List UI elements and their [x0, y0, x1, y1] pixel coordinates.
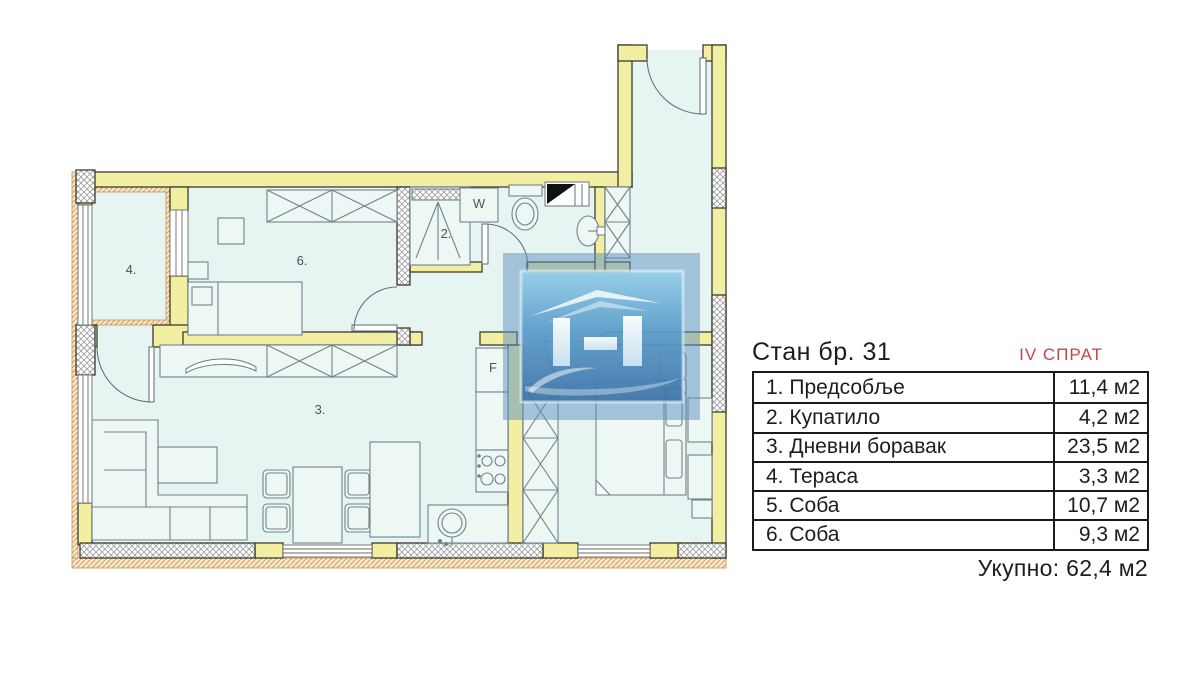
room-area: 10,7 м2 [1053, 492, 1147, 519]
dining-set [263, 467, 372, 543]
watermark-logo [503, 253, 700, 420]
electrical-box [545, 182, 589, 206]
label-bathroom: 2. [441, 226, 452, 241]
room-name: 3. Дневни боравак [754, 434, 1053, 460]
wardrobe-hall [605, 187, 630, 258]
nightstand-room5-c [692, 500, 712, 518]
tv-stand [160, 345, 397, 377]
room-area: 9,3 м2 [1053, 521, 1147, 548]
label-room6: 6. [297, 253, 308, 268]
table-row: 5. Соба 10,7 м2 [754, 490, 1147, 519]
table-row: 3. Дневни боравак 23,5 м2 [754, 432, 1147, 461]
total-area: Укупно: 62,4 м2 [752, 555, 1149, 582]
label-washer: W [473, 196, 486, 211]
room-name: 5. Соба [754, 493, 1053, 519]
floorplan-page: 4. 6. 2. 3. W F Стан бр. 31 IV СПРАТ 1. … [0, 0, 1200, 675]
room-area: 11,4 м2 [1053, 373, 1147, 402]
desk-room6 [218, 218, 244, 244]
label-terrace: 4. [126, 262, 137, 277]
kitchen-sink [428, 505, 508, 546]
room-name: 4. Тераса [754, 464, 1053, 490]
apartment-title: Стан бр. 31 [752, 338, 891, 367]
kitchen-island [370, 442, 420, 537]
area-table: 1. Предсобље 11,4 м2 2. Купатило 4,2 м2 … [752, 371, 1149, 551]
room-name: 6. Соба [754, 522, 1053, 548]
nightstand-room5-b [688, 455, 712, 499]
room-area: 23,5 м2 [1053, 434, 1147, 461]
bed-room6 [188, 282, 302, 335]
room-name: 2. Купатило [754, 405, 1053, 431]
table-row: 2. Купатило 4,2 м2 [754, 402, 1147, 431]
coffee-table [158, 447, 217, 483]
room-area: 4,2 м2 [1053, 404, 1147, 431]
panel-header: Стан бр. 31 IV СПРАТ [752, 338, 1149, 371]
wardrobe-room6 [267, 190, 397, 222]
room-name: 1. Предсобље [754, 375, 1053, 401]
nightstand-room6 [188, 262, 208, 279]
stove [476, 450, 508, 492]
label-living-room: 3. [315, 402, 326, 417]
table-row: 4. Тераса 3,3 м2 [754, 461, 1147, 490]
room-area: 3,3 м2 [1053, 463, 1147, 490]
floor-label: IV СПРАТ [1019, 345, 1103, 365]
info-panel: Стан бр. 31 IV СПРАТ 1. Предсобље 11,4 м… [752, 338, 1149, 582]
table-row: 6. Соба 9,3 м2 [754, 519, 1147, 548]
table-row: 1. Предсобље 11,4 м2 [754, 373, 1147, 402]
label-fridge: F [489, 360, 497, 375]
